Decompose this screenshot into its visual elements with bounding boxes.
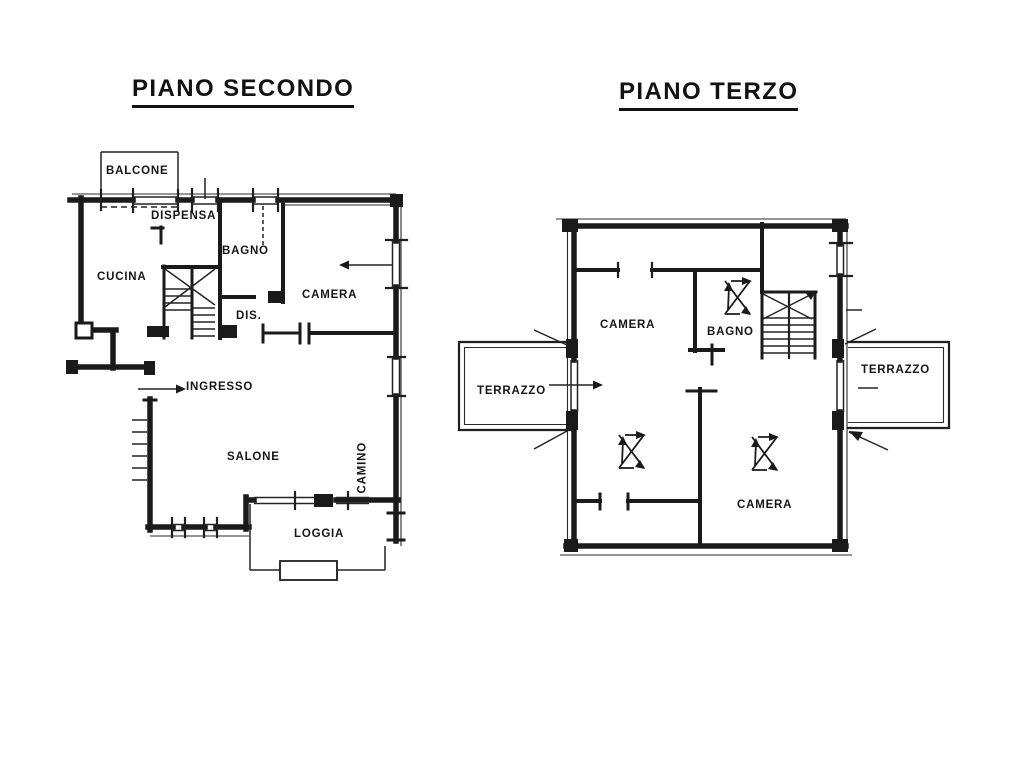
room-label-terrazzo-right: TERRAZZO <box>861 365 930 377</box>
room-label-dis: DIS. <box>236 311 262 323</box>
interior-walls-terzo <box>578 224 762 546</box>
room-label-camino: CAMINO <box>358 442 370 493</box>
room-label-bagno-terzo: BAGNO <box>707 327 754 339</box>
terrace-right-outline <box>845 329 949 450</box>
plan-title-piano-terzo: PIANO TERZO <box>619 79 798 111</box>
column-symbol <box>76 323 92 338</box>
loggia-outline <box>250 504 385 580</box>
balcony-outline <box>101 152 205 212</box>
room-label-camera-terzo-bottom: CAMERA <box>737 500 792 512</box>
plan-title-piano-secondo: PIANO SECONDO <box>132 76 354 108</box>
room-label-balcone: BALCONE <box>106 166 168 178</box>
leader-arrows-secondo <box>138 261 392 394</box>
room-label-ingresso: INGRESSO <box>186 382 253 394</box>
wardrobe-cross-icon <box>618 431 646 469</box>
room-label-cucina: CUCINA <box>97 272 147 284</box>
room-label-terrazzo-left: TERRAZZO <box>477 386 546 398</box>
room-label-camera-secondo: CAMERA <box>302 290 357 302</box>
floor-plan-drawing <box>0 0 1024 768</box>
floorplan-piano-secondo <box>66 152 407 580</box>
staircase-secondo <box>164 266 215 338</box>
floor-plan-page: PIANO SECONDO PIANO TERZO BALCONE DISPEN… <box>0 0 1024 768</box>
room-label-dispensa: DISPENSA <box>151 211 216 223</box>
wardrobe-cross-icon <box>751 433 779 471</box>
room-label-loggia: LOGGIA <box>294 529 344 541</box>
room-label-bagno-secondo: BAGNO <box>222 246 269 258</box>
staircase-terzo <box>762 291 816 358</box>
exterior-hatching <box>132 420 147 480</box>
wardrobe-cross-icon <box>724 277 752 315</box>
loggia-planter <box>280 561 337 580</box>
room-label-camera-terzo-top: CAMERA <box>600 320 655 332</box>
room-label-salone: SALONE <box>227 452 280 464</box>
